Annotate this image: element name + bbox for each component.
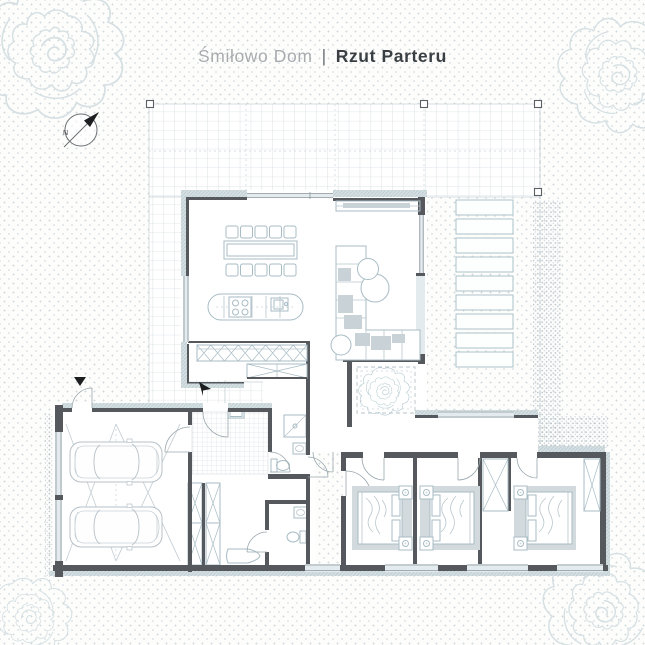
blueprint-canvas: N Śmiłowo Dom | Rzut Parteru [0, 0, 645, 645]
entry-arrow-icon [74, 377, 86, 386]
drawing-title: Śmiłowo Dom | Rzut Parteru [0, 46, 645, 67]
louver-slat [456, 314, 513, 329]
window [438, 411, 514, 418]
ottoman [331, 335, 351, 355]
dining-chair [241, 226, 253, 238]
window [385, 564, 438, 572]
car [70, 439, 162, 485]
terrace-post [421, 101, 428, 108]
garage-door [55, 432, 62, 495]
bed [352, 486, 412, 550]
kitchen-island [208, 294, 303, 320]
floral-sketch-bottom-left [0, 564, 84, 645]
dining-chair [241, 264, 253, 276]
window [305, 564, 340, 572]
title-separator: | [322, 46, 327, 67]
kitchen-counter [247, 364, 307, 379]
window [557, 564, 603, 572]
window [247, 192, 333, 199]
floral-sketch-top-right [536, 0, 645, 155]
nightstand [399, 537, 412, 550]
dining-area [224, 226, 297, 276]
louver-slat [456, 333, 513, 348]
car [70, 504, 162, 550]
kitchen-cabinets [197, 345, 307, 361]
louver-slat [456, 257, 513, 272]
floor-plan-drawing: N [0, 0, 645, 645]
terrace-post [147, 101, 154, 108]
pillow [528, 495, 536, 516]
north-label: N [63, 130, 68, 137]
dining-chair [284, 264, 296, 276]
dining-chair [270, 226, 282, 238]
north-arrow-icon: N [63, 112, 99, 147]
louver-slat [456, 238, 513, 253]
nightstand [399, 486, 412, 499]
garage-door [55, 500, 62, 561]
louver-slat [456, 200, 513, 215]
dining-chair [226, 264, 238, 276]
nightstand [420, 486, 433, 499]
bed [420, 486, 480, 550]
dining-chair [270, 264, 282, 276]
dining-chair [255, 226, 267, 238]
louvers [456, 200, 513, 367]
wardrobe [584, 459, 600, 511]
dining-chair [284, 226, 296, 238]
nightstand [514, 537, 527, 550]
window [183, 276, 189, 342]
project-name: Śmiłowo Dom [198, 46, 313, 67]
coffee-table [358, 259, 379, 280]
hall-wardrobes [188, 483, 220, 565]
bed [514, 486, 576, 550]
louver-slat [456, 295, 513, 310]
tiled-floor [192, 412, 268, 474]
terrace-post [535, 189, 542, 196]
louver-slat [456, 276, 513, 291]
window [419, 215, 424, 273]
terrace-post [535, 101, 542, 108]
nightstand [514, 486, 527, 499]
pillow [528, 520, 536, 541]
dining-chair [255, 264, 267, 276]
louver-slat [456, 352, 513, 367]
window [467, 564, 528, 572]
sheet-name: Rzut Parteru [336, 46, 447, 67]
louver-slat [456, 219, 513, 234]
dining-chair [226, 226, 238, 238]
nightstand [420, 537, 433, 550]
wardrobe [483, 459, 508, 511]
